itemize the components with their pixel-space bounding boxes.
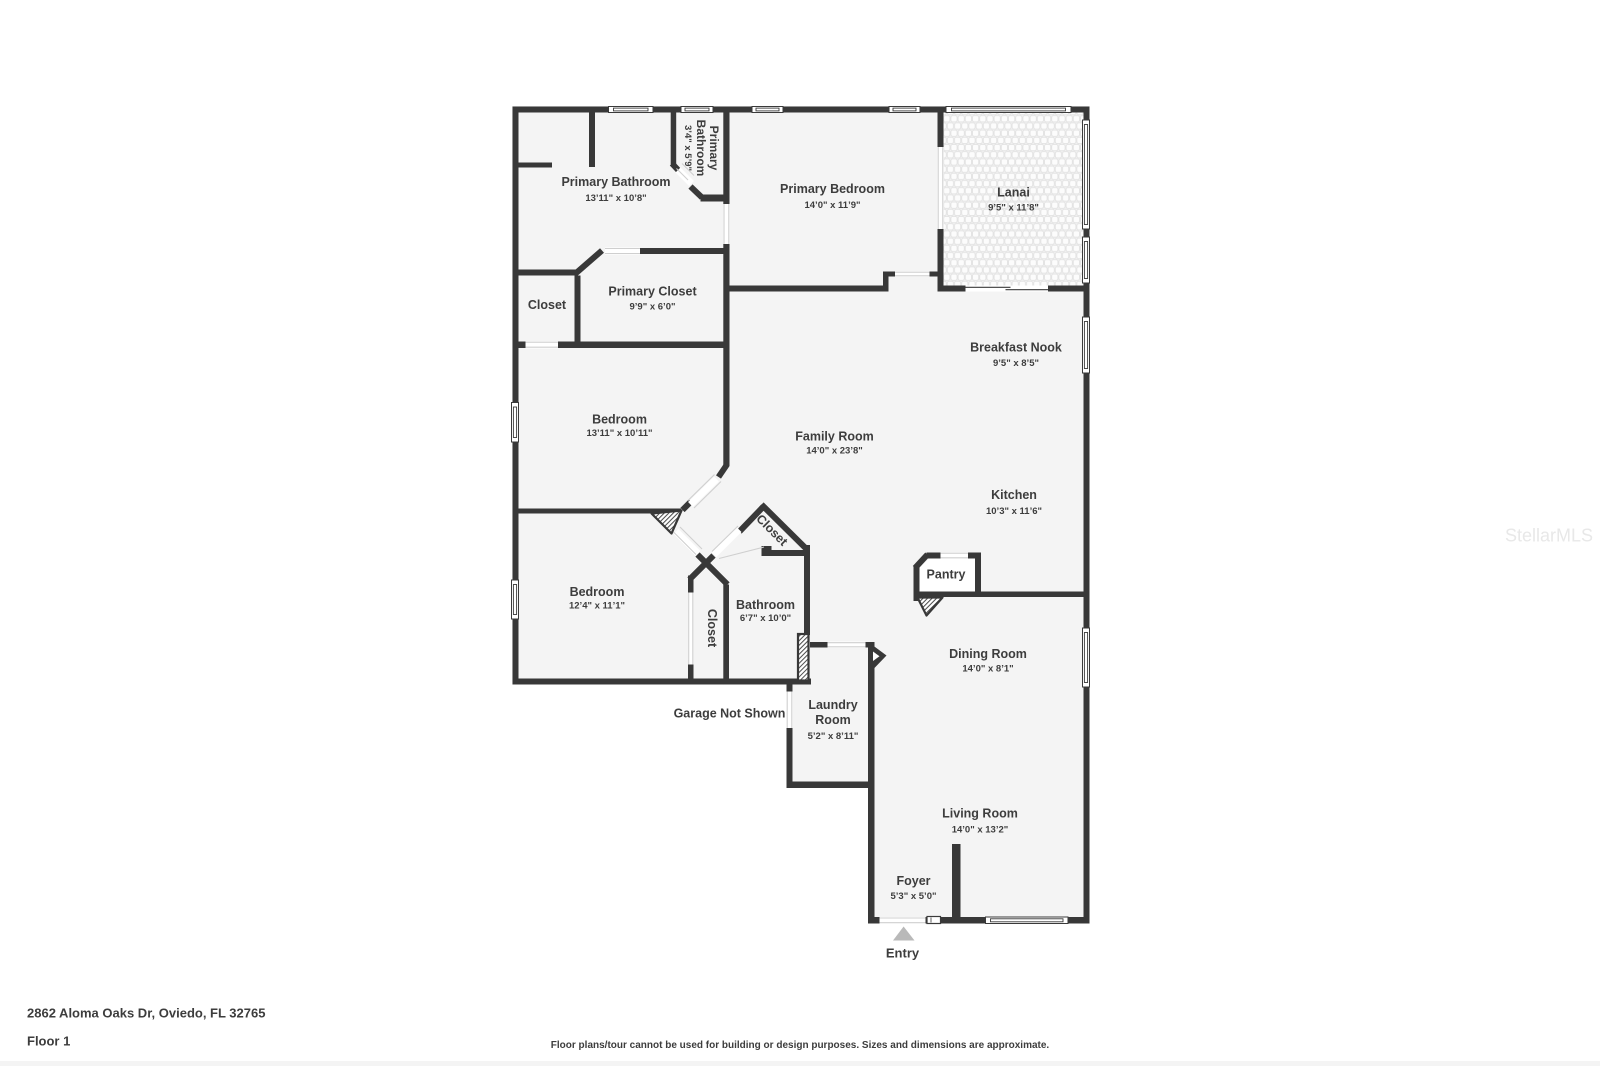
svg-text:2862 Aloma Oaks Dr, Oviedo, FL: 2862 Aloma Oaks Dr, Oviedo, FL 32765: [27, 1006, 265, 1021]
svg-text:Room: Room: [815, 713, 850, 727]
svg-text:5’2" x 8’11": 5’2" x 8’11": [808, 731, 859, 742]
svg-text:Dining Room: Dining Room: [949, 647, 1027, 661]
svg-text:14’0" x 23’8": 14’0" x 23’8": [806, 446, 863, 457]
svg-text:Floor 1: Floor 1: [27, 1034, 70, 1049]
svg-text:Lanai: Lanai: [997, 186, 1030, 200]
svg-text:Breakfast Nook: Breakfast Nook: [970, 341, 1062, 355]
svg-text:14’0" x 8’1": 14’0" x 8’1": [962, 664, 1013, 675]
svg-text:Family Room: Family Room: [795, 430, 874, 444]
svg-text:Laundry: Laundry: [808, 698, 857, 712]
svg-text:Primary Bathroom: Primary Bathroom: [561, 175, 670, 189]
svg-text:12’4" x 11’1": 12’4" x 11’1": [569, 601, 625, 612]
svg-text:14’0" x 13’2": 14’0" x 13’2": [952, 825, 1009, 836]
svg-text:Living Room: Living Room: [942, 807, 1018, 821]
svg-text:Foyer: Foyer: [896, 874, 930, 888]
svg-text:9’5" x 11’8": 9’5" x 11’8": [988, 203, 1039, 214]
svg-text:Primary: Primary: [707, 126, 721, 171]
svg-text:Closet: Closet: [528, 298, 567, 312]
svg-text:Bedroom: Bedroom: [592, 413, 647, 427]
svg-text:14’0" x 11’9": 14’0" x 11’9": [804, 200, 860, 211]
svg-text:Garage Not Shown: Garage Not Shown: [674, 707, 786, 721]
svg-text:9’9" x 6’0": 9’9" x 6’0": [630, 302, 676, 313]
svg-text:Kitchen: Kitchen: [991, 488, 1037, 502]
svg-text:10’3" x 11’6": 10’3" x 11’6": [986, 506, 1042, 517]
svg-text:Entry: Entry: [886, 946, 920, 961]
svg-text:Primary Closet: Primary Closet: [608, 285, 697, 299]
svg-text:Floor plans/tour cannot be use: Floor plans/tour cannot be used for buil…: [551, 1040, 1050, 1051]
svg-text:Bathroom: Bathroom: [694, 120, 708, 177]
svg-text:9’5" x 8’5": 9’5" x 8’5": [993, 358, 1039, 369]
svg-text:3’4" x 5’9": 3’4" x 5’9": [682, 125, 693, 171]
svg-text:13’11" x 10’8": 13’11" x 10’8": [585, 193, 646, 204]
svg-text:Bathroom: Bathroom: [736, 598, 795, 612]
svg-text:StellarMLS: StellarMLS: [1505, 526, 1593, 546]
svg-text:6’7" x 10’0": 6’7" x 10’0": [740, 613, 791, 624]
svg-text:Pantry: Pantry: [927, 568, 966, 582]
svg-text:Primary Bedroom: Primary Bedroom: [780, 182, 885, 196]
svg-text:Bedroom: Bedroom: [570, 585, 625, 599]
svg-text:13’11" x 10’11": 13’11" x 10’11": [586, 428, 652, 439]
svg-text:Closet: Closet: [705, 609, 719, 648]
svg-text:5’3" x 5’0": 5’3" x 5’0": [891, 891, 937, 902]
